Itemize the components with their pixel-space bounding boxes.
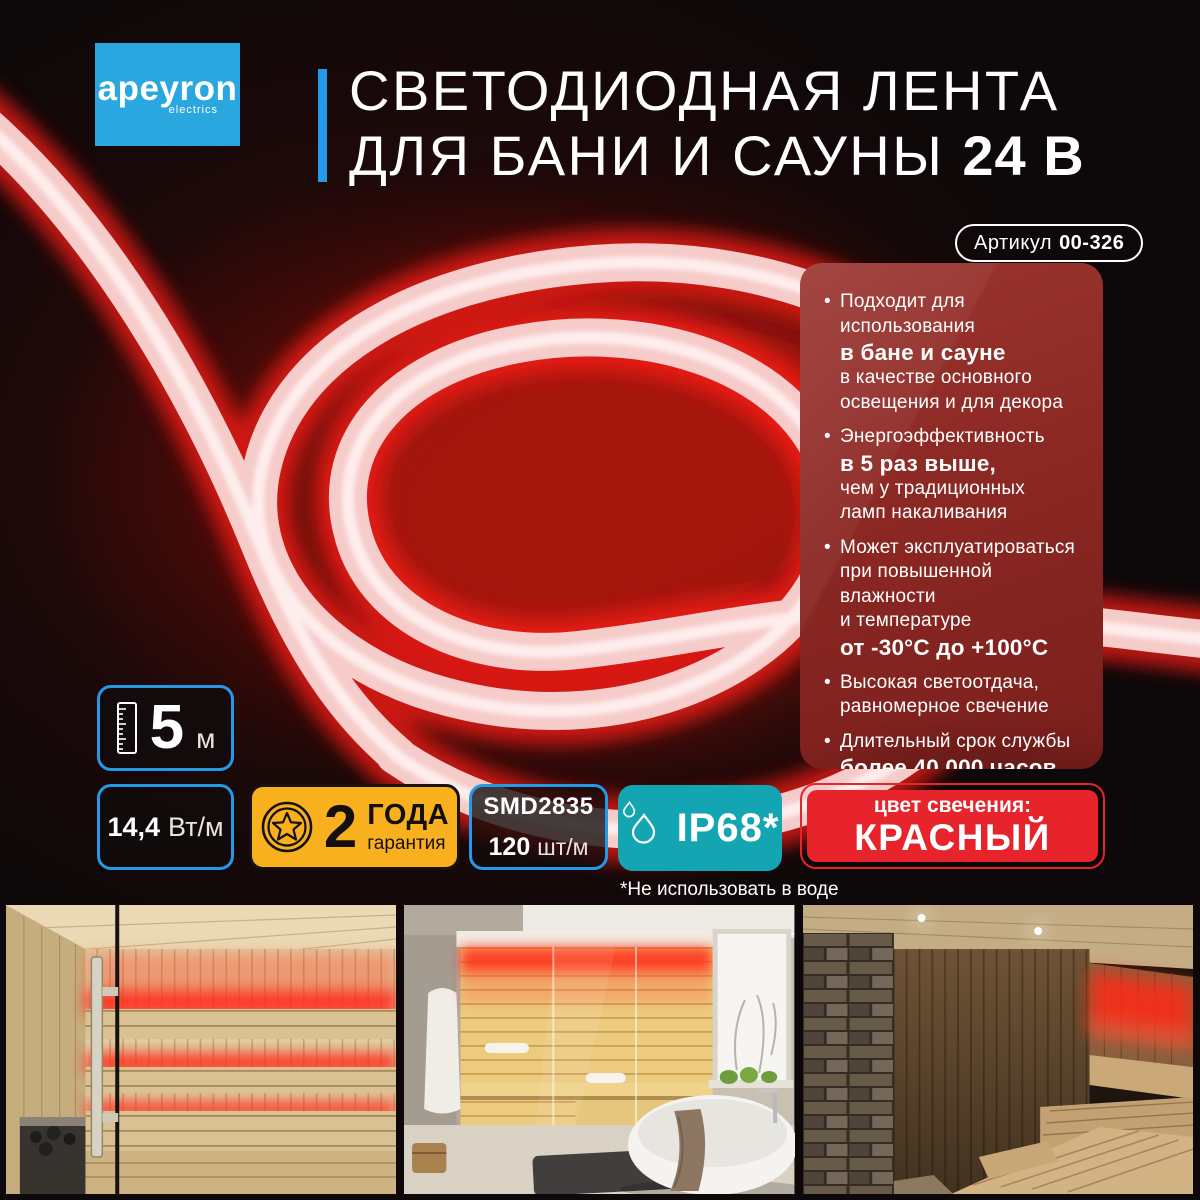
photo-sauna-light	[6, 905, 396, 1194]
power-value: 14,4	[107, 812, 160, 843]
ip-footnote: *Не использовать в воде	[620, 879, 839, 901]
led-density-unit: шт/м	[537, 834, 588, 861]
length-value: 5	[150, 698, 184, 758]
page-title: СВЕТОДИОДНАЯ ЛЕНТА ДЛЯ БАНИ И САУНЫ 24 В	[349, 58, 1149, 188]
brand-logo: apeyron electrics	[95, 43, 240, 146]
warranty-label-top: ГОДА	[367, 801, 449, 830]
warranty-label-bottom: гарантия	[367, 834, 445, 853]
feature-efficiency: Энергоэффективность в 5 раз выше, чем у …	[824, 425, 1093, 526]
features-panel: Подходит для использования в бане и саун…	[800, 263, 1103, 769]
glow-color-badge: цвет свечения: КРАСНЫЙ	[800, 783, 1105, 869]
article-label: Артикул	[974, 232, 1052, 255]
warranty-years: 2	[324, 798, 357, 856]
photo-bathroom	[404, 905, 794, 1194]
ip-rating-badge: IP68*	[618, 785, 782, 871]
glow-color-label: цвет свечения:	[874, 794, 1031, 818]
ip-rating-value: IP68*	[677, 806, 780, 851]
brand-name: apeyron	[98, 74, 238, 104]
brand-tagline: electrics	[169, 104, 218, 116]
length-unit: м	[196, 723, 215, 755]
product-card: apeyron electrics СВЕТОДИОДНАЯ ЛЕНТА ДЛЯ…	[0, 0, 1200, 1200]
led-model: SMD2835	[483, 793, 593, 821]
led-density-value: 120	[489, 833, 531, 862]
gallery	[6, 905, 1193, 1194]
ruler-icon	[116, 701, 138, 755]
photo-sauna-dark	[803, 905, 1193, 1194]
length-badge: 5 м	[97, 685, 234, 771]
title-accent-bar	[318, 69, 327, 182]
warranty-badge: 2 ГОДА гарантия	[249, 784, 460, 870]
title-line-1: СВЕТОДИОДНАЯ ЛЕНТА	[349, 58, 1149, 123]
article-badge: Артикул 00-326	[955, 224, 1143, 262]
feature-lifetime: Длительный срок службы более 40 000 часо…	[824, 730, 1093, 770]
feature-light-output: Высокая светоотдача, равномерное свечени…	[824, 671, 1093, 720]
power-badge: 14,4 Вт/м	[97, 784, 234, 870]
water-drops-icon	[621, 799, 667, 857]
article-value: 00-326	[1059, 232, 1124, 255]
power-unit: Вт/м	[168, 812, 224, 843]
glow-color-value: КРАСНЫЙ	[854, 818, 1051, 858]
led-type-badge: SMD2835 120 шт/м	[469, 784, 608, 870]
title-voltage: 24 В	[962, 124, 1084, 187]
feature-usage: Подходит для использования в бане и саун…	[824, 290, 1093, 415]
feature-temperature: Может эксплуатироваться при повышенной в…	[824, 536, 1093, 661]
title-line-2: ДЛЯ БАНИ И САУНЫ 24 В	[349, 123, 1149, 188]
star-medal-icon	[260, 800, 314, 854]
